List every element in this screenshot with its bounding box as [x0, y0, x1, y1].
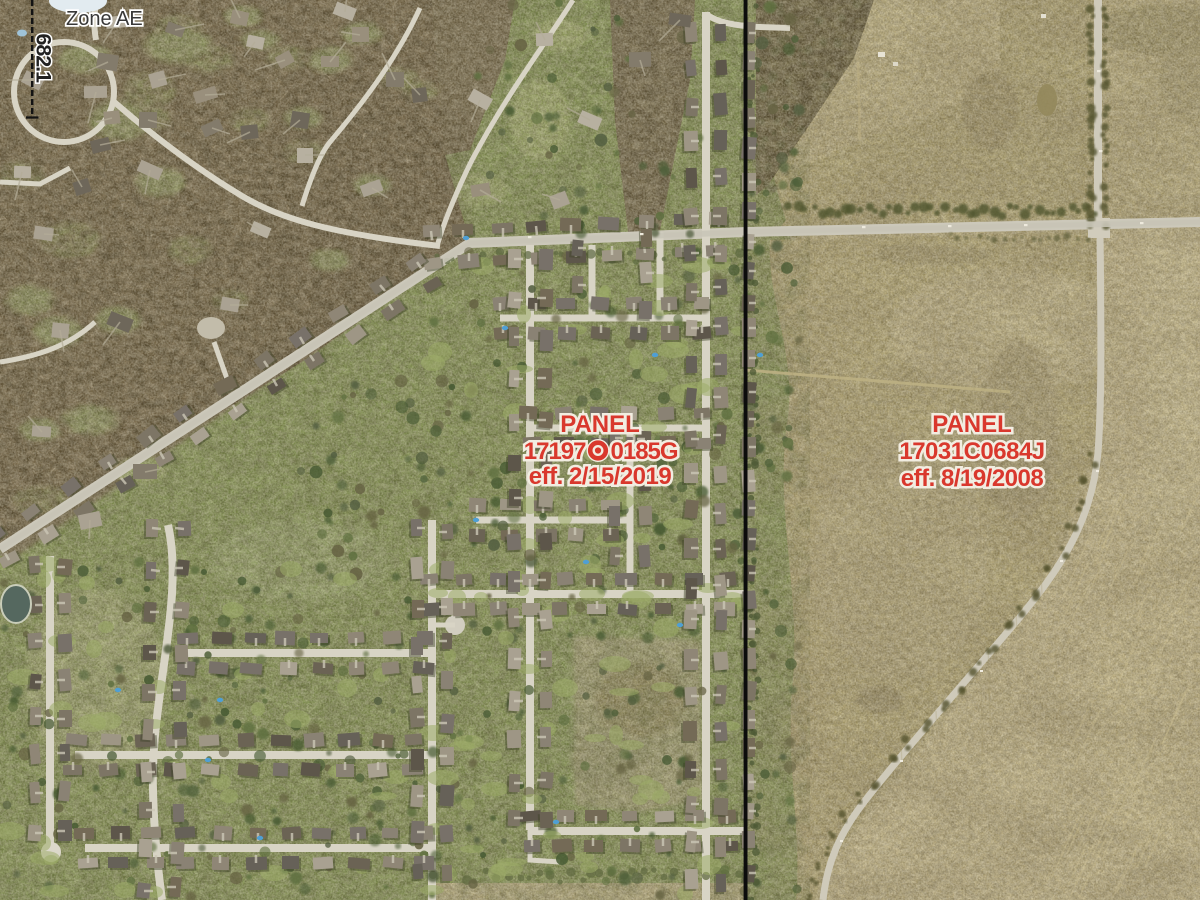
svg-text:PANEL: PANEL [560, 411, 640, 438]
svg-text:17197: 17197 [524, 438, 586, 465]
svg-text:17031C0684J: 17031C0684J [899, 438, 1044, 465]
svg-text:0185G: 0185G [611, 438, 678, 465]
svg-text:PANEL: PANEL [932, 411, 1012, 438]
svg-text:682.1: 682.1 [32, 34, 56, 83]
svg-text:Zone AE: Zone AE [66, 8, 143, 30]
svg-text:eff. 8/19/2008: eff. 8/19/2008 [901, 465, 1044, 492]
svg-text:eff. 2/15/2019: eff. 2/15/2019 [529, 463, 672, 490]
